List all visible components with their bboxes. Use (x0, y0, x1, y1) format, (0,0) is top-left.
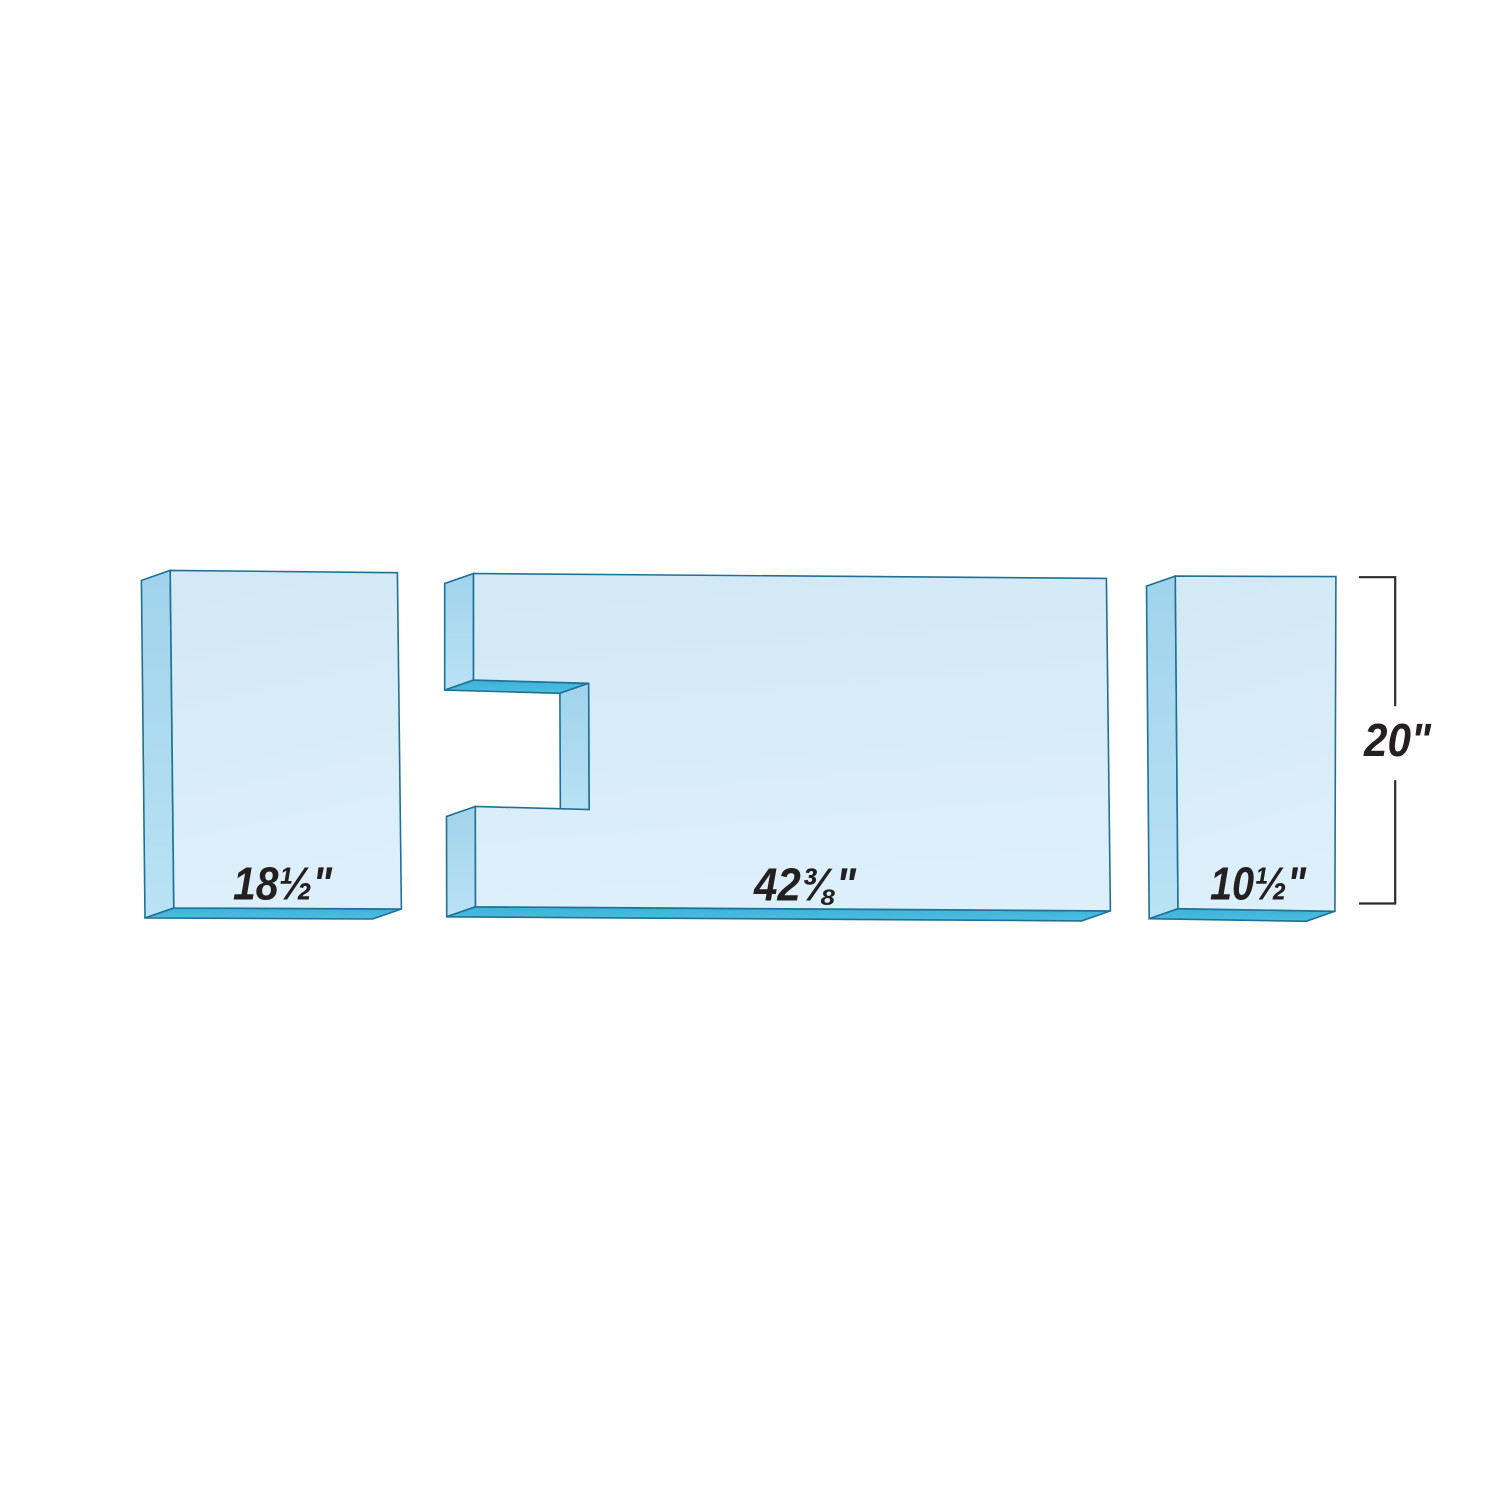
svg-text:20": 20" (1363, 714, 1432, 766)
svg-text:10½": 10½" (1210, 857, 1307, 909)
svg-text:42⅜": 42⅜" (753, 859, 857, 911)
svg-text:18½": 18½" (233, 857, 333, 909)
